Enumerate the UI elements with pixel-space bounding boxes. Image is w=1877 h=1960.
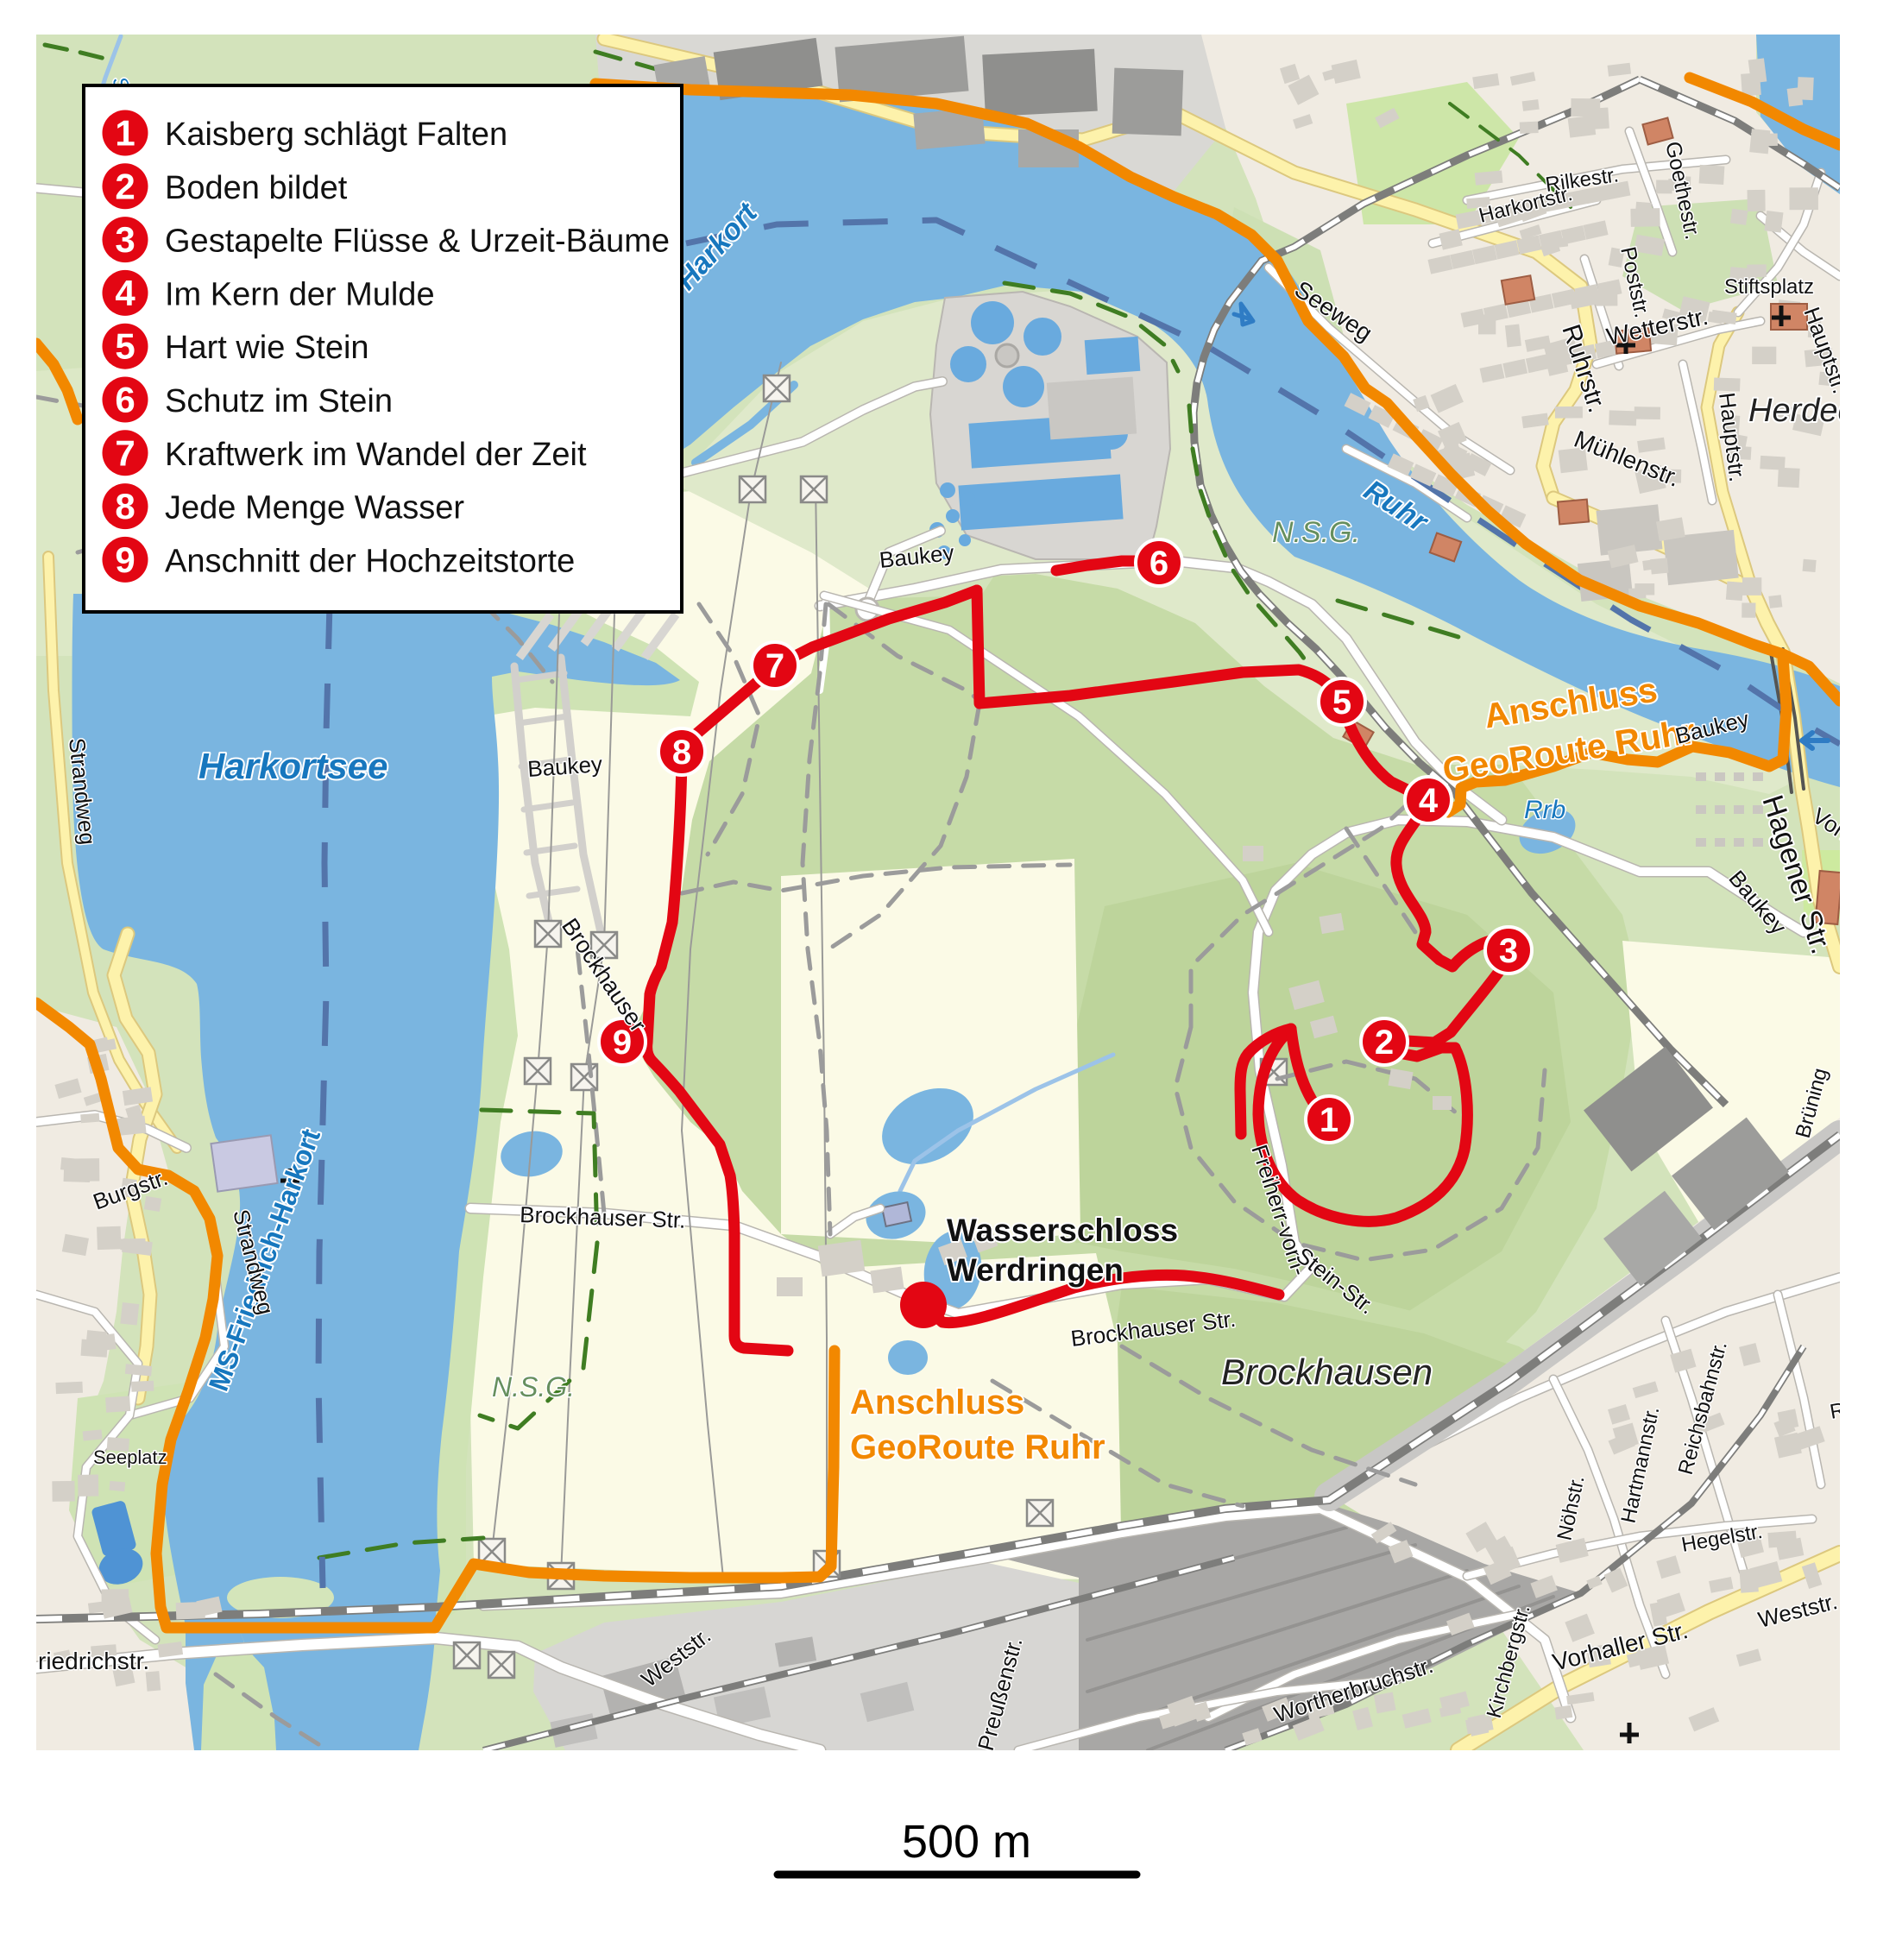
svg-text:Gestapelte Flüsse & Urzeit-Bäu: Gestapelte Flüsse & Urzeit-Bäume	[165, 224, 670, 260]
svg-text:N.S.G.: N.S.G.	[1272, 516, 1360, 549]
svg-text:2: 2	[115, 166, 135, 206]
svg-text:5: 5	[115, 326, 135, 367]
svg-text:Anschluss: Anschluss	[850, 1383, 1024, 1421]
svg-text:3: 3	[115, 219, 135, 260]
svg-text:Boden bildet: Boden bildet	[165, 170, 348, 206]
svg-text:2: 2	[1375, 1024, 1394, 1062]
svg-text:Hart wie Stein: Hart wie Stein	[165, 330, 369, 366]
svg-text:Anschnitt der Hochzeitstorte: Anschnitt der Hochzeitstorte	[165, 543, 575, 579]
svg-text:Seeplatz: Seeplatz	[93, 1446, 167, 1468]
svg-text:500 m: 500 m	[902, 1816, 1031, 1868]
svg-text:1: 1	[1320, 1101, 1338, 1139]
svg-text:riedrichstr.: riedrichstr.	[38, 1648, 149, 1674]
svg-text:1: 1	[115, 113, 135, 154]
svg-text:N.S.G.: N.S.G.	[492, 1371, 575, 1402]
svg-text:Im Kern der Mulde: Im Kern der Mulde	[165, 276, 435, 312]
svg-text:4: 4	[115, 273, 135, 313]
svg-text:Baukey: Baukey	[526, 751, 603, 782]
svg-text:7: 7	[765, 647, 784, 685]
svg-text:6: 6	[1150, 545, 1168, 583]
svg-text:GeoRoute Ruhr: GeoRoute Ruhr	[850, 1428, 1105, 1466]
svg-text:5: 5	[1332, 684, 1351, 722]
svg-text:9: 9	[115, 539, 135, 580]
svg-text:Werdringen: Werdringen	[947, 1252, 1124, 1288]
svg-text:3: 3	[1499, 932, 1518, 970]
svg-text:8: 8	[672, 734, 691, 772]
svg-text:Kraftwerk im Wandel der Zeit: Kraftwerk im Wandel der Zeit	[165, 437, 587, 473]
svg-text:Schutz im Stein: Schutz im Stein	[165, 383, 393, 419]
svg-text:Wasserschloss: Wasserschloss	[947, 1213, 1178, 1248]
svg-text:7: 7	[115, 432, 135, 473]
svg-text:Stiftsplatz: Stiftsplatz	[1724, 275, 1814, 299]
svg-text:Harkortsee: Harkortsee	[198, 746, 387, 786]
svg-text:6: 6	[115, 380, 135, 420]
svg-text:4: 4	[1419, 782, 1439, 820]
svg-text:Brockhausen: Brockhausen	[1221, 1352, 1433, 1392]
svg-text:Jede Menge Wasser: Jede Menge Wasser	[165, 490, 464, 526]
svg-text:Rrb: Rrb	[1524, 796, 1565, 824]
svg-text:Kaisberg schlägt Falten: Kaisberg schlägt Falten	[165, 117, 507, 153]
svg-text:8: 8	[115, 486, 135, 526]
